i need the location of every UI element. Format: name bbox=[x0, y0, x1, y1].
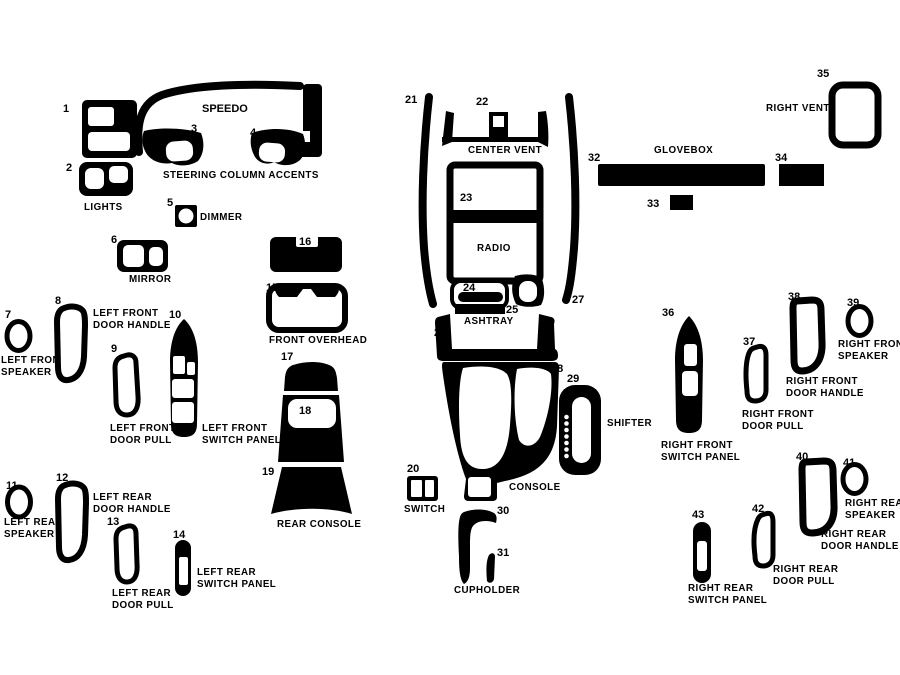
part-26-number: 26 bbox=[434, 327, 446, 339]
part-19-number: 19 bbox=[262, 466, 274, 478]
label-left-front-switch-panel-1: LEFT FRONT bbox=[202, 423, 267, 434]
part-13-left-rear-door-pull bbox=[116, 526, 137, 582]
part-40-number: 40 bbox=[796, 451, 808, 463]
label-left-rear-door-handle-2: DOOR HANDLE bbox=[93, 504, 171, 515]
part-39-right-front-speaker-ring bbox=[848, 307, 871, 336]
part-19-rear-console-bottom bbox=[271, 467, 352, 514]
label-right-rear-switch-panel-1: RIGHT REAR bbox=[688, 583, 753, 594]
part-1-number: 1 bbox=[63, 103, 69, 115]
part-28-console-surround bbox=[442, 362, 559, 501]
label-left-rear-door-handle-1: LEFT REAR bbox=[93, 492, 152, 503]
label-mirror: MIRROR bbox=[129, 274, 171, 285]
part-2-number: 2 bbox=[66, 162, 72, 174]
part-34-number: 34 bbox=[775, 152, 788, 164]
part-2-window-2 bbox=[109, 166, 128, 183]
part-27-right-pillar-trim bbox=[566, 97, 575, 300]
part-43-number: 43 bbox=[692, 509, 704, 521]
label-lights: LIGHTS bbox=[84, 202, 123, 213]
part-1-window-2 bbox=[88, 132, 130, 151]
part-20-number: 20 bbox=[407, 463, 419, 475]
label-switch: SWITCH bbox=[404, 504, 445, 515]
label-left-front-door-pull-2: DOOR PULL bbox=[110, 435, 172, 446]
part-11-number: 11 bbox=[6, 480, 18, 492]
part-42-number: 42 bbox=[752, 503, 764, 515]
part-15-overhead-frame bbox=[269, 286, 345, 330]
dash-kit-diagram-page: SPEEDO 1 2 LIGHTS 3 4 STEERING COLUMN AC… bbox=[0, 0, 900, 675]
part-32-number: 32 bbox=[588, 152, 600, 164]
part-43-cutout bbox=[697, 541, 707, 571]
part-31-number: 31 bbox=[497, 547, 509, 559]
label-radio: RADIO bbox=[477, 243, 511, 254]
part-28-number: 28 bbox=[551, 363, 563, 375]
part-12-left-rear-door-handle bbox=[58, 484, 86, 561]
part-21-number: 21 bbox=[405, 94, 417, 106]
label-right-front-switch-panel-2: SWITCH PANEL bbox=[661, 452, 740, 463]
part-29-dot-7 bbox=[564, 454, 569, 459]
part-21-left-pillar-trim bbox=[423, 97, 433, 304]
part-6-window-1 bbox=[123, 245, 144, 267]
part-10-cutout-1 bbox=[173, 356, 185, 374]
label-right-front-door-pull-2: DOOR PULL bbox=[742, 421, 804, 432]
part-22-window bbox=[493, 116, 504, 127]
label-console: CONSOLE bbox=[509, 482, 561, 493]
label-rear-console: REAR CONSOLE bbox=[277, 519, 361, 530]
part-39-number: 39 bbox=[847, 297, 859, 309]
label-right-front-door-handle-1: RIGHT FRONT bbox=[786, 376, 858, 387]
part-5-cutout bbox=[179, 209, 194, 224]
label-right-rear-door-pull-2: DOOR PULL bbox=[773, 576, 835, 587]
label-left-front-door-handle-2: DOOR HANDLE bbox=[93, 320, 171, 331]
label-left-front-speaker-2: SPEAKER bbox=[1, 367, 52, 378]
label-left-rear-door-pull-1: LEFT REAR bbox=[112, 588, 171, 599]
part-2-lights-trim bbox=[79, 162, 133, 196]
part-4-number: 4 bbox=[250, 127, 257, 139]
part-3-cutout bbox=[165, 140, 193, 162]
part-33-number: 33 bbox=[647, 198, 659, 210]
part-43-right-rear-switch-panel bbox=[693, 522, 711, 583]
label-cupholder: CUPHOLDER bbox=[454, 585, 520, 596]
part-20-window-1 bbox=[411, 480, 422, 497]
label-left-rear-speaker-2: SPEAKER bbox=[4, 529, 55, 540]
part-36-cutout-2 bbox=[682, 371, 698, 396]
label-right-rear-speaker-2: SPEAKER bbox=[845, 510, 896, 521]
part-29-dot-6 bbox=[564, 447, 569, 452]
part-23-number: 23 bbox=[460, 192, 472, 204]
part-40-right-rear-door-handle bbox=[802, 461, 834, 533]
label-ashtray: ASHTRAY bbox=[464, 316, 514, 327]
part-14-cutout bbox=[179, 557, 188, 585]
label-right-front-speaker-2: SPEAKER bbox=[838, 351, 889, 362]
part-13-number: 13 bbox=[107, 516, 119, 528]
part-4-steering-accent-right bbox=[251, 129, 305, 165]
part-10-cutout-4 bbox=[172, 402, 194, 423]
part-2-window-1 bbox=[85, 168, 104, 189]
part-3-number: 3 bbox=[191, 123, 197, 135]
part-38-number: 38 bbox=[788, 291, 800, 303]
part-28-cutout-left bbox=[459, 366, 511, 469]
part-33-small-plate bbox=[670, 195, 693, 210]
label-right-rear-door-handle-1: RIGHT REAR bbox=[821, 529, 886, 540]
part-10-cutout-2 bbox=[187, 362, 195, 375]
part-29-dot-5 bbox=[564, 441, 569, 446]
part-18-number: 18 bbox=[299, 405, 311, 417]
label-left-front-door-pull-1: LEFT FRONT bbox=[110, 423, 175, 434]
part-9-left-front-door-pull bbox=[115, 355, 138, 415]
part-22-center-vent-trim bbox=[442, 111, 548, 147]
part-24-ashtray-frame bbox=[452, 281, 507, 308]
part-29-dot-4 bbox=[564, 434, 569, 439]
speedo-right-bar bbox=[303, 84, 322, 157]
part-22-number: 22 bbox=[476, 96, 488, 108]
label-right-rear-switch-panel-2: SWITCH PANEL bbox=[688, 595, 767, 606]
label-steering-column-accents: STEERING COLUMN ACCENTS bbox=[163, 170, 319, 181]
part-8-number: 8 bbox=[55, 295, 61, 307]
part-29-shifter-plate bbox=[559, 385, 601, 475]
part-38-right-front-door-handle bbox=[793, 300, 822, 371]
label-right-vent: RIGHT VENT bbox=[766, 103, 830, 114]
part-41-number: 41 bbox=[843, 457, 855, 469]
label-right-rear-speaker-1: RIGHT REAR bbox=[845, 498, 900, 509]
label-right-front-speaker-1: RIGHT FRONT bbox=[838, 339, 900, 350]
label-left-rear-switch-panel-1: LEFT REAR bbox=[197, 567, 256, 578]
part-36-number: 36 bbox=[662, 307, 674, 319]
part-28-neck-window bbox=[468, 477, 491, 497]
part-6-mirror-trim bbox=[117, 240, 168, 272]
part-35-right-vent-frame bbox=[832, 85, 878, 145]
label-front-overhead: FRONT OVERHEAD bbox=[269, 335, 367, 346]
label-glovebox: GLOVEBOX bbox=[654, 145, 713, 156]
label-left-rear-speaker-1: LEFT REAR bbox=[4, 517, 63, 528]
label-speedo: SPEEDO bbox=[202, 103, 248, 115]
part-1-window-1 bbox=[88, 107, 114, 126]
label-right-front-door-handle-2: DOOR HANDLE bbox=[786, 388, 864, 399]
label-dimmer: DIMMER bbox=[200, 212, 242, 223]
part-4-cutout bbox=[258, 142, 285, 163]
part-14-number: 14 bbox=[173, 529, 186, 541]
part-10-cutout-3 bbox=[172, 379, 194, 398]
part-5-number: 5 bbox=[167, 197, 173, 209]
part-7-number: 7 bbox=[5, 309, 11, 321]
part-10-left-front-switch-panel bbox=[170, 319, 198, 437]
part-12-number: 12 bbox=[56, 472, 68, 484]
part-29-number: 29 bbox=[567, 373, 579, 385]
part-25-ashtray-strip bbox=[455, 304, 505, 314]
part-9-number: 9 bbox=[111, 343, 117, 355]
part-31-cupholder-strip bbox=[486, 553, 495, 582]
label-left-front-door-handle-1: LEFT FRONT bbox=[93, 308, 158, 319]
label-left-rear-switch-panel-2: SWITCH PANEL bbox=[197, 579, 276, 590]
part-1-cluster-left-trim bbox=[82, 100, 137, 158]
part-5-dimmer-trim bbox=[175, 205, 197, 227]
part-20-window-2 bbox=[425, 480, 434, 497]
part-15-number: 15 bbox=[266, 282, 278, 294]
part-10-number: 10 bbox=[169, 309, 181, 321]
part-42-right-rear-door-pull bbox=[754, 513, 773, 566]
part-29-dot-2 bbox=[564, 421, 569, 426]
label-right-rear-door-pull-1: RIGHT REAR bbox=[773, 564, 838, 575]
part-16-number: 16 bbox=[299, 236, 311, 248]
part-14-left-rear-switch-panel bbox=[175, 540, 191, 596]
part-37-right-front-door-pull bbox=[746, 346, 766, 401]
part-32-glovebox-strip bbox=[598, 164, 765, 186]
label-shifter: SHIFTER bbox=[607, 418, 652, 429]
part-23-divider bbox=[452, 210, 538, 223]
label-right-front-door-pull-1: RIGHT FRONT bbox=[742, 409, 814, 420]
part-23-radio-bezel bbox=[450, 165, 540, 281]
label-left-rear-door-pull-2: DOOR PULL bbox=[112, 600, 174, 611]
part-35-number: 35 bbox=[817, 68, 829, 80]
part-18-window bbox=[288, 399, 336, 428]
part-8-left-front-door-handle bbox=[57, 307, 85, 381]
part-30-number: 30 bbox=[497, 505, 509, 517]
center-stack-side-piece bbox=[512, 274, 544, 306]
part-24-number: 24 bbox=[463, 282, 476, 294]
label-right-rear-door-handle-2: DOOR HANDLE bbox=[821, 541, 899, 552]
part-36-right-front-switch-panel bbox=[675, 316, 703, 433]
dash-kit-diagram: SPEEDO 1 2 LIGHTS 3 4 STEERING COLUMN AC… bbox=[0, 0, 900, 675]
part-6-window-2 bbox=[149, 247, 163, 266]
part-25-number: 25 bbox=[506, 304, 518, 316]
side-piece-cutout bbox=[519, 281, 537, 302]
label-center-vent: CENTER VENT bbox=[468, 145, 542, 156]
label-left-front-switch-panel-2: SWITCH PANEL bbox=[202, 435, 281, 446]
part-29-slot bbox=[572, 397, 591, 463]
part-7-left-front-speaker-ring bbox=[7, 322, 30, 351]
part-20-switch-trim bbox=[407, 476, 438, 501]
part-27-number: 27 bbox=[572, 294, 584, 306]
part-29-dot-1 bbox=[564, 415, 569, 420]
part-17-number: 17 bbox=[281, 351, 293, 363]
part-34-strip bbox=[779, 164, 824, 186]
part-17-rear-console-top bbox=[284, 362, 338, 391]
label-right-front-switch-panel-1: RIGHT FRONT bbox=[661, 440, 733, 451]
part-29-dot-3 bbox=[564, 428, 569, 433]
part-6-number: 6 bbox=[111, 234, 117, 246]
part-37-number: 37 bbox=[743, 336, 755, 348]
part-36-cutout-1 bbox=[684, 344, 697, 366]
